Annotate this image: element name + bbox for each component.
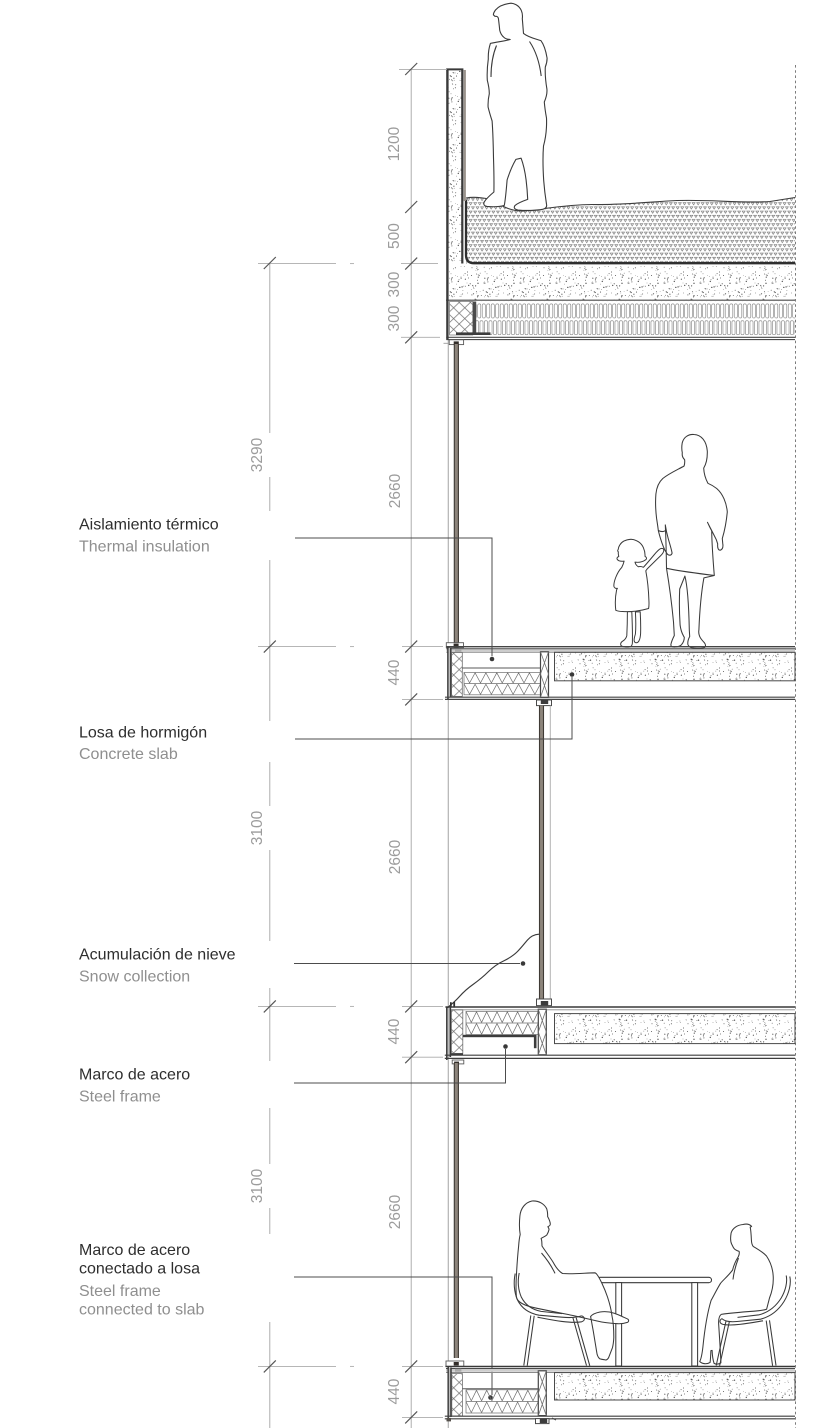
svg-text:3100: 3100	[249, 1168, 266, 1203]
svg-text:Losa de hormigón: Losa de hormigón	[79, 725, 207, 742]
svg-text:Aislamiento térmico: Aislamiento térmico	[79, 517, 219, 534]
svg-text:440: 440	[386, 1378, 403, 1404]
svg-text:Steel frame: Steel frame	[79, 1283, 161, 1300]
svg-text:3290: 3290	[249, 437, 266, 472]
svg-text:Acumulación de nieve: Acumulación de nieve	[79, 947, 236, 964]
svg-text:3100: 3100	[249, 810, 266, 845]
svg-text:conectado a losa: conectado a losa	[79, 1261, 200, 1278]
svg-text:Snow collection: Snow collection	[79, 969, 190, 986]
svg-text:2660: 2660	[387, 1194, 404, 1229]
svg-text:500: 500	[386, 223, 403, 249]
svg-text:440: 440	[386, 659, 403, 685]
svg-text:300: 300	[386, 271, 403, 297]
svg-text:Marco de acero: Marco de acero	[79, 1067, 190, 1084]
svg-text:300: 300	[386, 305, 403, 331]
svg-text:2660: 2660	[387, 473, 404, 508]
svg-text:Thermal insulation: Thermal insulation	[79, 539, 210, 556]
svg-text:2660: 2660	[387, 839, 404, 874]
svg-text:440: 440	[386, 1018, 403, 1044]
svg-text:Marco de acero: Marco de acero	[79, 1242, 190, 1259]
svg-text:1200: 1200	[386, 126, 403, 161]
svg-text:connected to slab: connected to slab	[79, 1302, 205, 1319]
svg-text:Steel frame: Steel frame	[79, 1089, 161, 1106]
svg-text:Concrete slab: Concrete slab	[79, 746, 178, 763]
